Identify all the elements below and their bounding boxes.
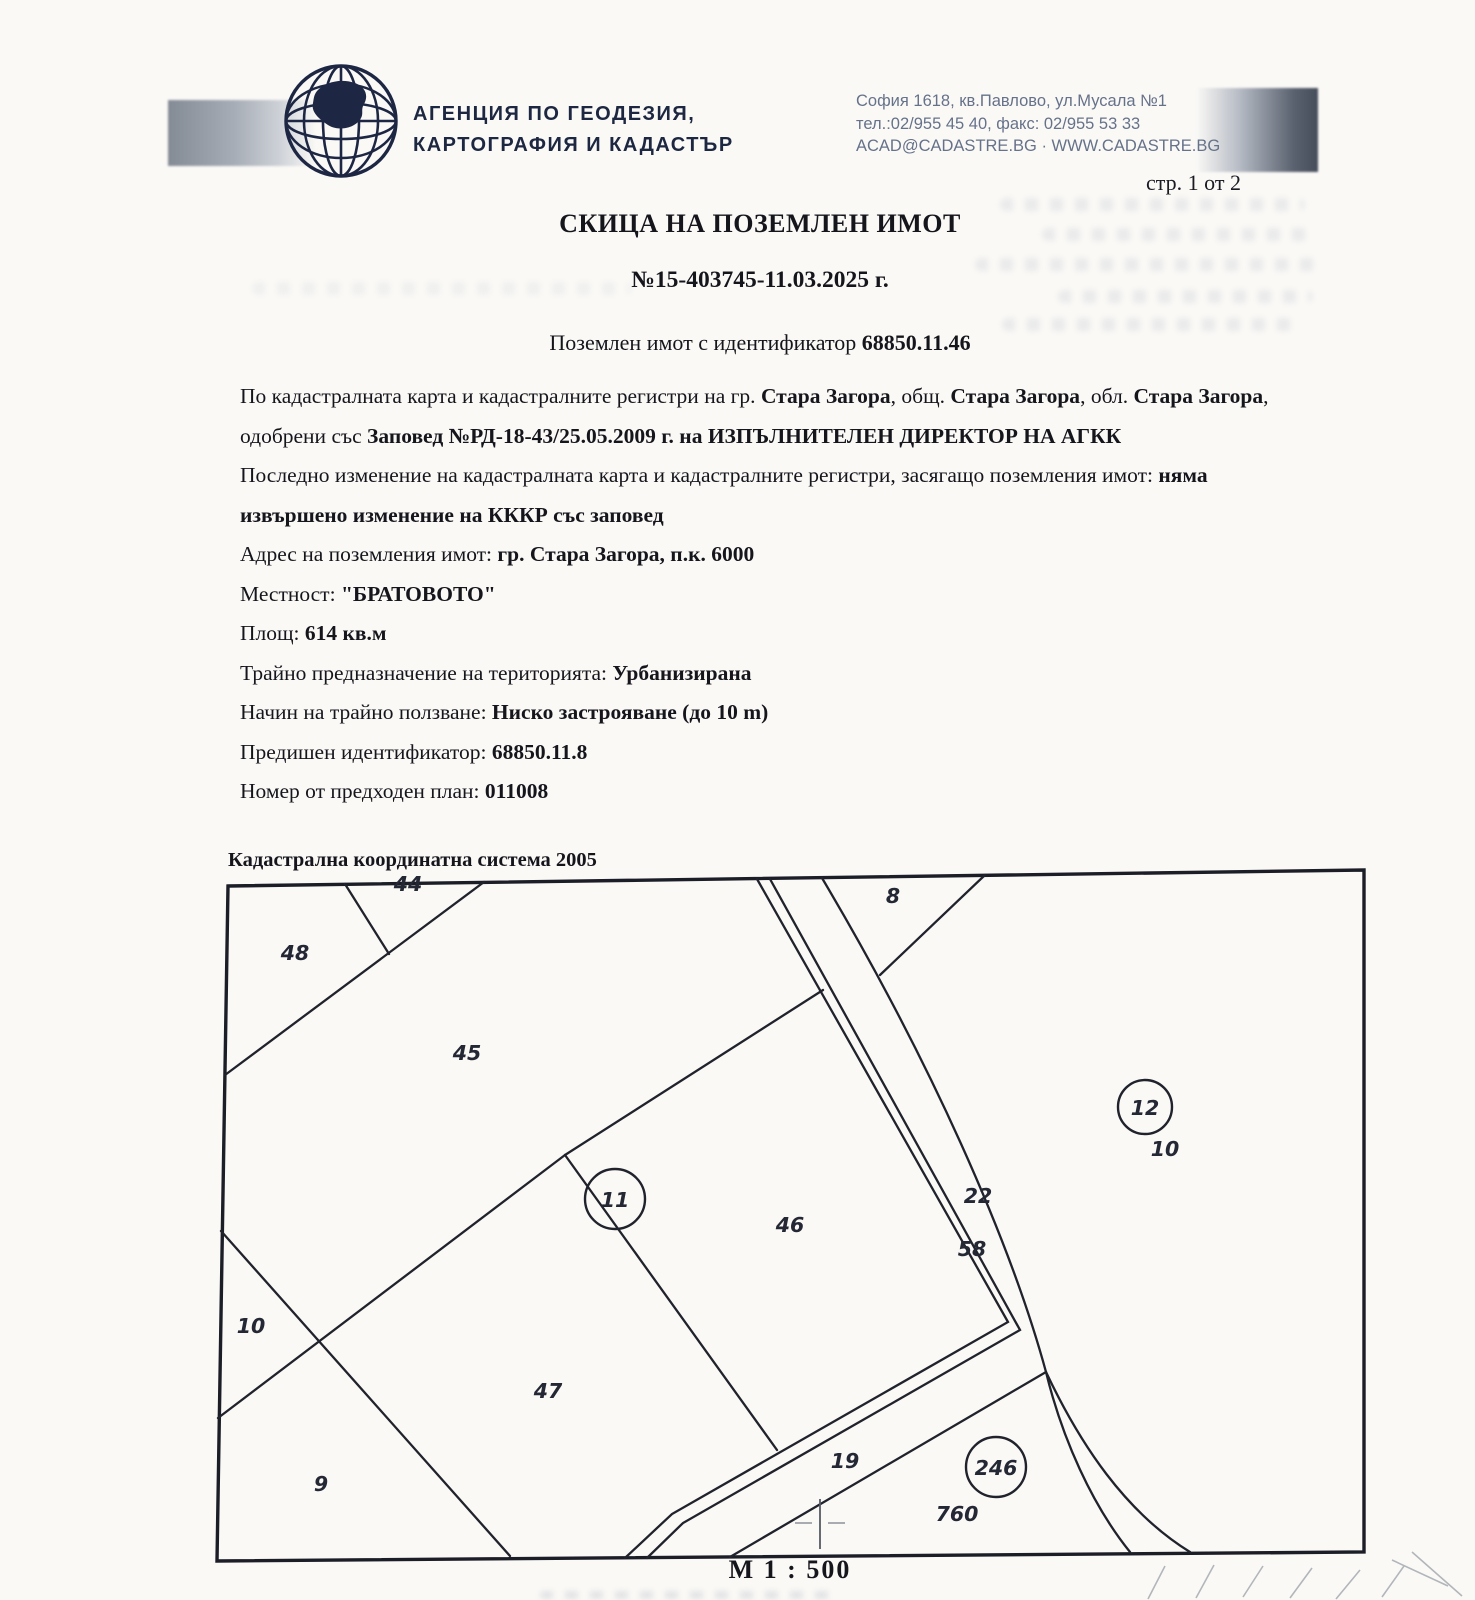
parcel-label-8: 8 bbox=[886, 884, 900, 908]
circled-label-246: 246 bbox=[966, 1437, 1026, 1497]
cadastral-sketch-map: 44 48 45 8 22 58 46 10 10 47 9 19 760 11… bbox=[0, 0, 1475, 1600]
parcel-label-58: 58 bbox=[958, 1237, 987, 1261]
survey-cross-marker bbox=[795, 1499, 845, 1549]
parcel-boundary-lines bbox=[218, 875, 1190, 1558]
pencil-hatch-marks bbox=[1148, 1552, 1462, 1599]
parcel-number-labels: 44 48 45 8 22 58 46 10 10 47 9 19 760 bbox=[237, 872, 1180, 1526]
parcel-label-47: 47 bbox=[533, 1379, 563, 1403]
parcel-label-45: 45 bbox=[452, 1041, 482, 1065]
svg-text:246: 246 bbox=[975, 1456, 1018, 1480]
parcel-label-9: 9 bbox=[314, 1472, 328, 1496]
circled-label-12: 12 bbox=[1118, 1080, 1172, 1134]
parcel-label-10-right: 10 bbox=[1151, 1137, 1180, 1161]
parcel-label-19: 19 bbox=[831, 1449, 860, 1473]
parcel-label-44: 44 bbox=[393, 872, 423, 896]
svg-text:11: 11 bbox=[601, 1188, 630, 1212]
parcel-label-22: 22 bbox=[964, 1184, 993, 1208]
parcel-label-48: 48 bbox=[280, 941, 310, 965]
parcel-label-46: 46 bbox=[775, 1213, 805, 1237]
scanned-cadastral-document: АГЕНЦИЯ ПО ГЕОДЕЗИЯ, КАРТОГРАФИЯ И КАДАС… bbox=[0, 0, 1475, 1600]
map-scale-label: М 1 : 500 bbox=[640, 1555, 940, 1585]
svg-text:12: 12 bbox=[1131, 1096, 1160, 1120]
parcel-label-760: 760 bbox=[936, 1502, 979, 1526]
parcel-label-10-left: 10 bbox=[237, 1314, 266, 1338]
circled-label-11: 11 bbox=[585, 1169, 645, 1229]
circled-point-labels: 11 12 246 bbox=[585, 1080, 1172, 1497]
